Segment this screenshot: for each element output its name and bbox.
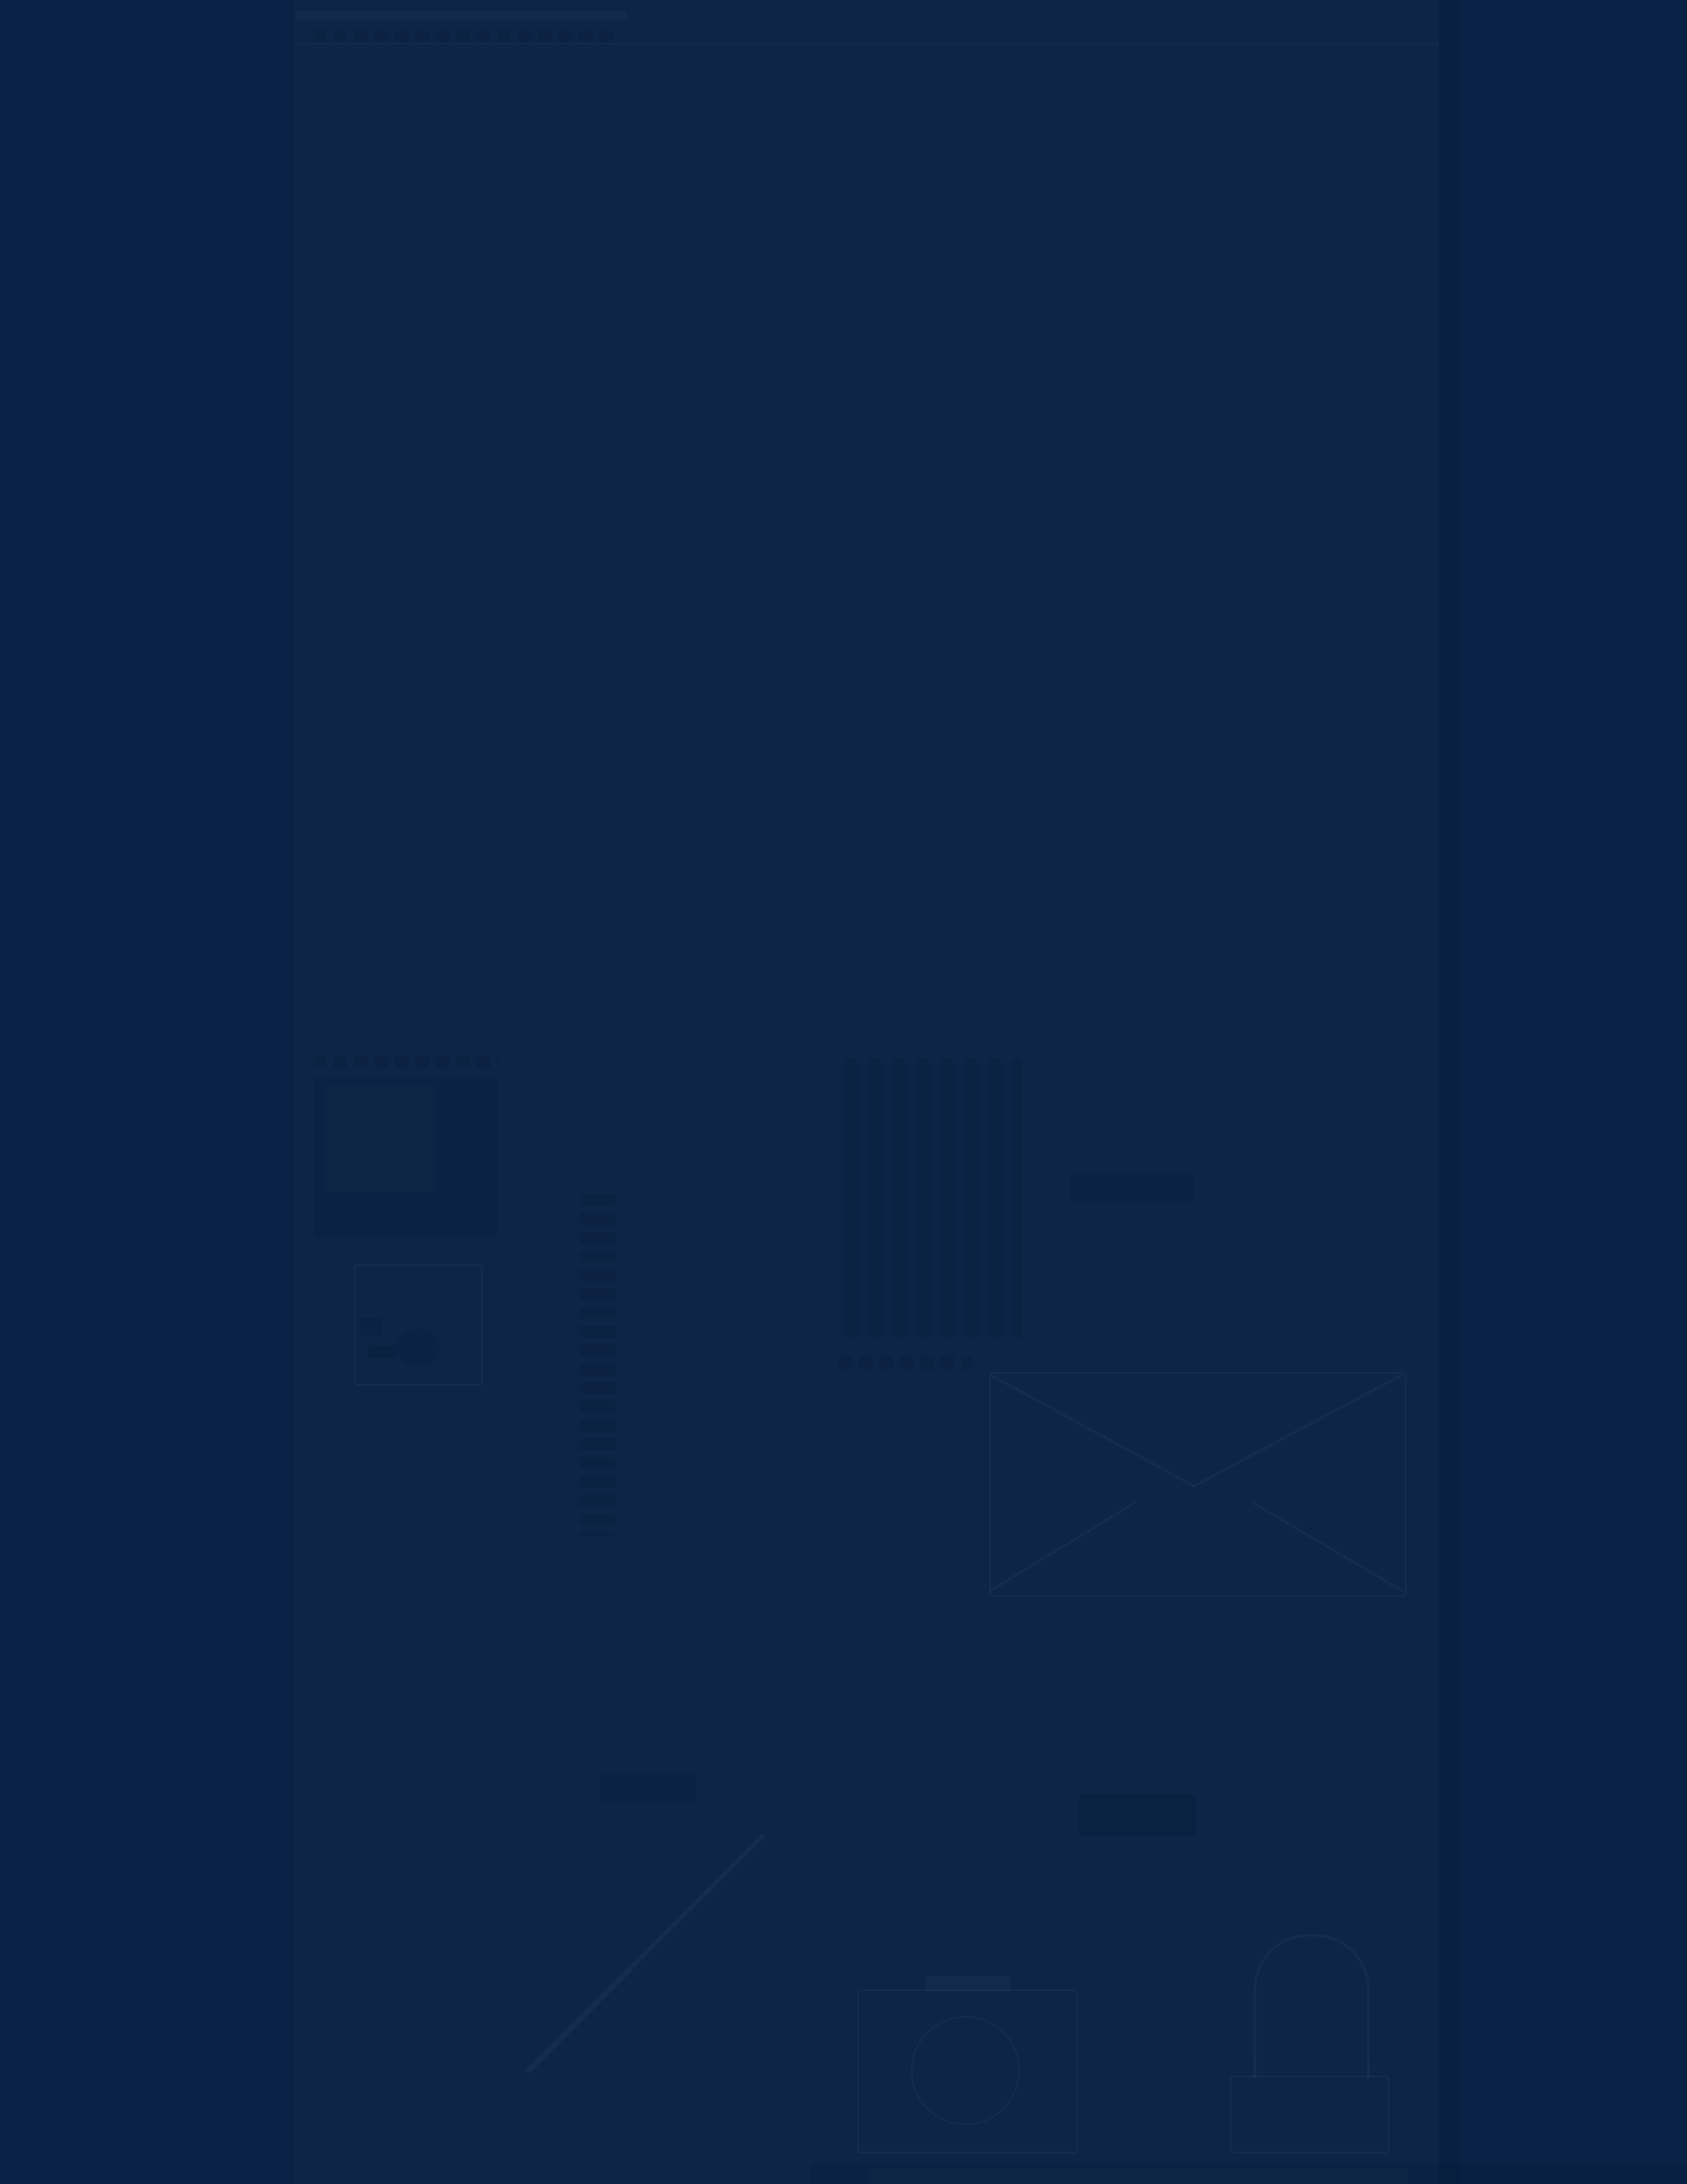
envelope-fold-right [1194, 1375, 1401, 1486]
envelope-crease-left [991, 1503, 1134, 1590]
climb-slope-line [529, 1837, 762, 2071]
envelope-fold-left [991, 1375, 1194, 1486]
overlay-screen [0, 0, 1687, 2184]
envelope-crease-right [1254, 1503, 1401, 1590]
ghost-lines-layer [0, 0, 1687, 2184]
